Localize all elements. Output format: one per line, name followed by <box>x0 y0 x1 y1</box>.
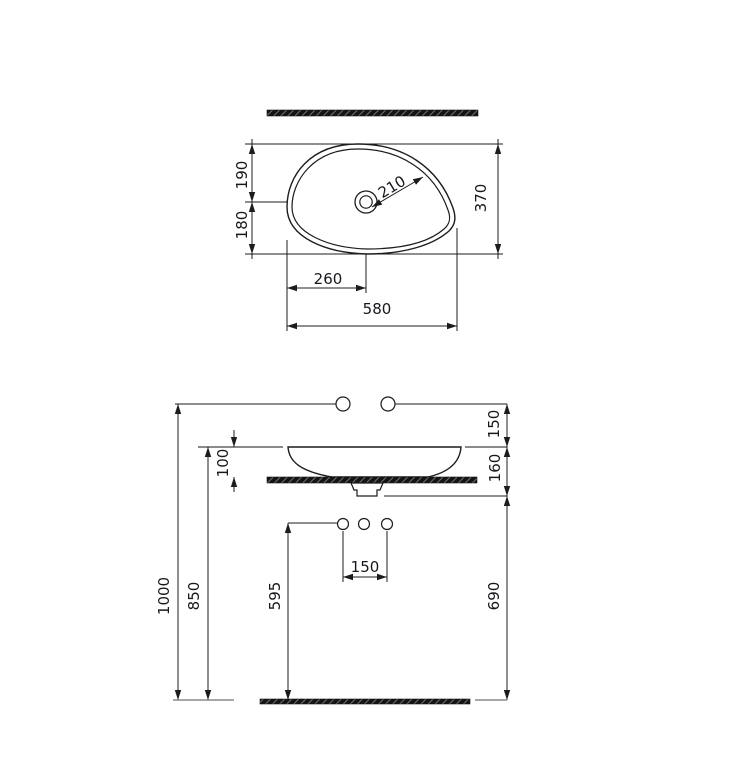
dim-text-190: 190 <box>233 161 251 190</box>
wall-hole-right <box>382 519 393 530</box>
technical-drawing: 190 180 370 210 260 580 <box>0 0 740 770</box>
floor-bar <box>260 699 470 704</box>
wall-section-bar <box>267 110 478 116</box>
dim-text-260: 260 <box>314 270 343 288</box>
drain-flange <box>351 483 383 496</box>
basin-front-profile <box>288 447 461 477</box>
wall-hole-center <box>359 519 370 530</box>
dim-text-180: 180 <box>233 211 251 240</box>
top-view: 190 180 370 210 260 580 <box>233 110 503 331</box>
drawing-sheet: 190 180 370 210 260 580 <box>0 0 740 770</box>
front-view: 150 100 160 150 1000 850 595 690 <box>155 397 510 704</box>
dim-text-150-holes: 150 <box>351 558 380 576</box>
dim-text-370: 370 <box>472 184 490 213</box>
dim-text-160: 160 <box>486 454 504 483</box>
dim-text-100: 100 <box>214 449 232 478</box>
drain-hole-inner <box>360 196 372 208</box>
countertop-bar <box>267 477 477 483</box>
dim-text-150-faucet: 150 <box>485 410 503 439</box>
faucet-hole-right <box>381 397 395 411</box>
dim-text-690: 690 <box>485 582 503 611</box>
dim-text-580: 580 <box>363 300 392 318</box>
dim-text-1000: 1000 <box>155 577 173 615</box>
wall-hole-left <box>338 519 349 530</box>
dim-text-850: 850 <box>185 582 203 611</box>
dim-text-595: 595 <box>266 582 284 611</box>
faucet-hole-left <box>336 397 350 411</box>
